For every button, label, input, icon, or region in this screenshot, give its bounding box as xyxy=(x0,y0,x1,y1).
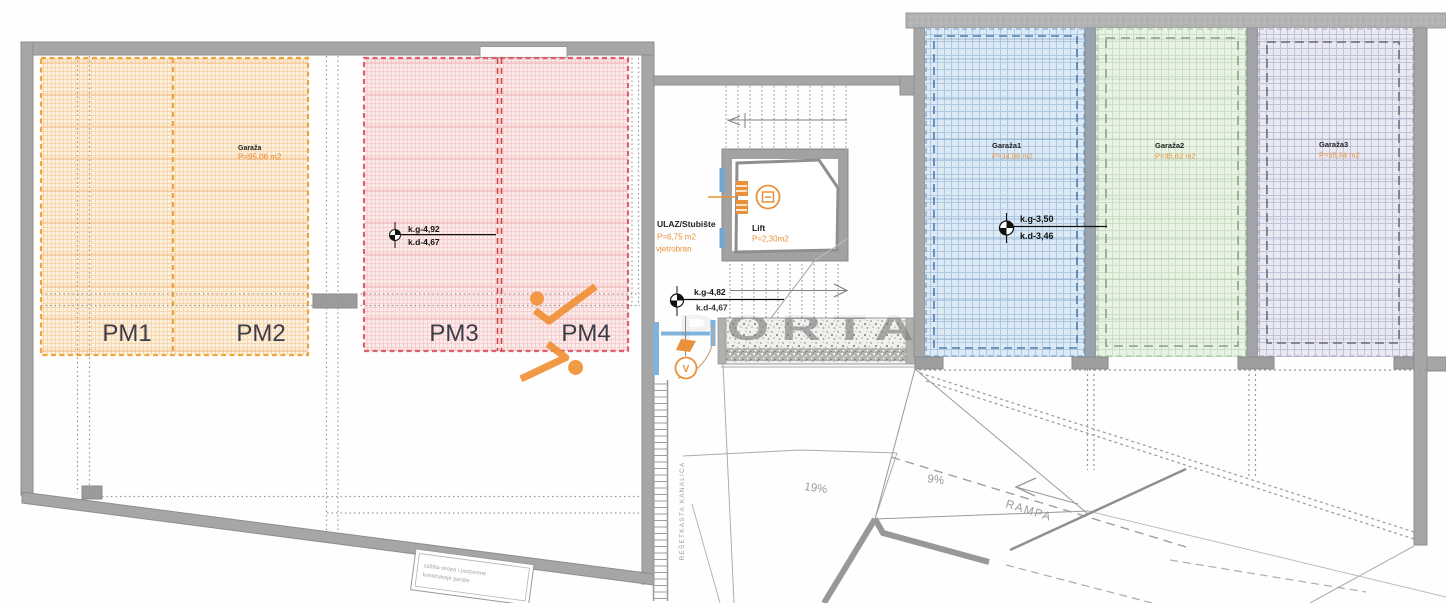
svg-text:P=35,94 m2: P=35,94 m2 xyxy=(1319,151,1360,160)
svg-text:k.d-4,67: k.d-4,67 xyxy=(408,237,440,247)
svg-text:PM1: PM1 xyxy=(102,320,151,347)
svg-text:k.g-4,92: k.g-4,92 xyxy=(408,224,440,234)
svg-text:k.g-3,50: k.g-3,50 xyxy=(1020,214,1054,224)
svg-text:P=35,62 m2: P=35,62 m2 xyxy=(1155,152,1196,161)
svg-text:Lift: Lift xyxy=(752,223,765,233)
svg-text:Garaža: Garaža xyxy=(238,145,261,152)
svg-text:REŠETKASTA KANALICA: REŠETKASTA KANALICA xyxy=(677,462,686,561)
svg-text:P=34,06 m2: P=34,06 m2 xyxy=(992,152,1033,161)
svg-text:Garaža2: Garaža2 xyxy=(1155,141,1184,150)
svg-text:PM2: PM2 xyxy=(236,320,285,347)
svg-text:P=2,30m2: P=2,30m2 xyxy=(752,235,789,244)
svg-text:P=95,06 m2: P=95,06 m2 xyxy=(238,153,282,162)
svg-text:9%: 9% xyxy=(927,473,945,487)
svg-text:ULAZ/Stubište: ULAZ/Stubište xyxy=(657,219,716,229)
svg-text:V: V xyxy=(683,364,690,375)
svg-text:Garaža1: Garaža1 xyxy=(992,141,1021,150)
svg-text:k.d-3,46: k.d-3,46 xyxy=(1020,231,1054,241)
svg-text:Garaža3: Garaža3 xyxy=(1319,140,1348,149)
svg-text:PM3: PM3 xyxy=(429,320,478,347)
svg-text:PM4: PM4 xyxy=(561,320,610,347)
svg-text:k.g-4,82: k.g-4,82 xyxy=(694,287,726,297)
svg-text:P=6,75 m2: P=6,75 m2 xyxy=(657,233,696,242)
svg-text:vjetrobran: vjetrobran xyxy=(656,245,692,254)
